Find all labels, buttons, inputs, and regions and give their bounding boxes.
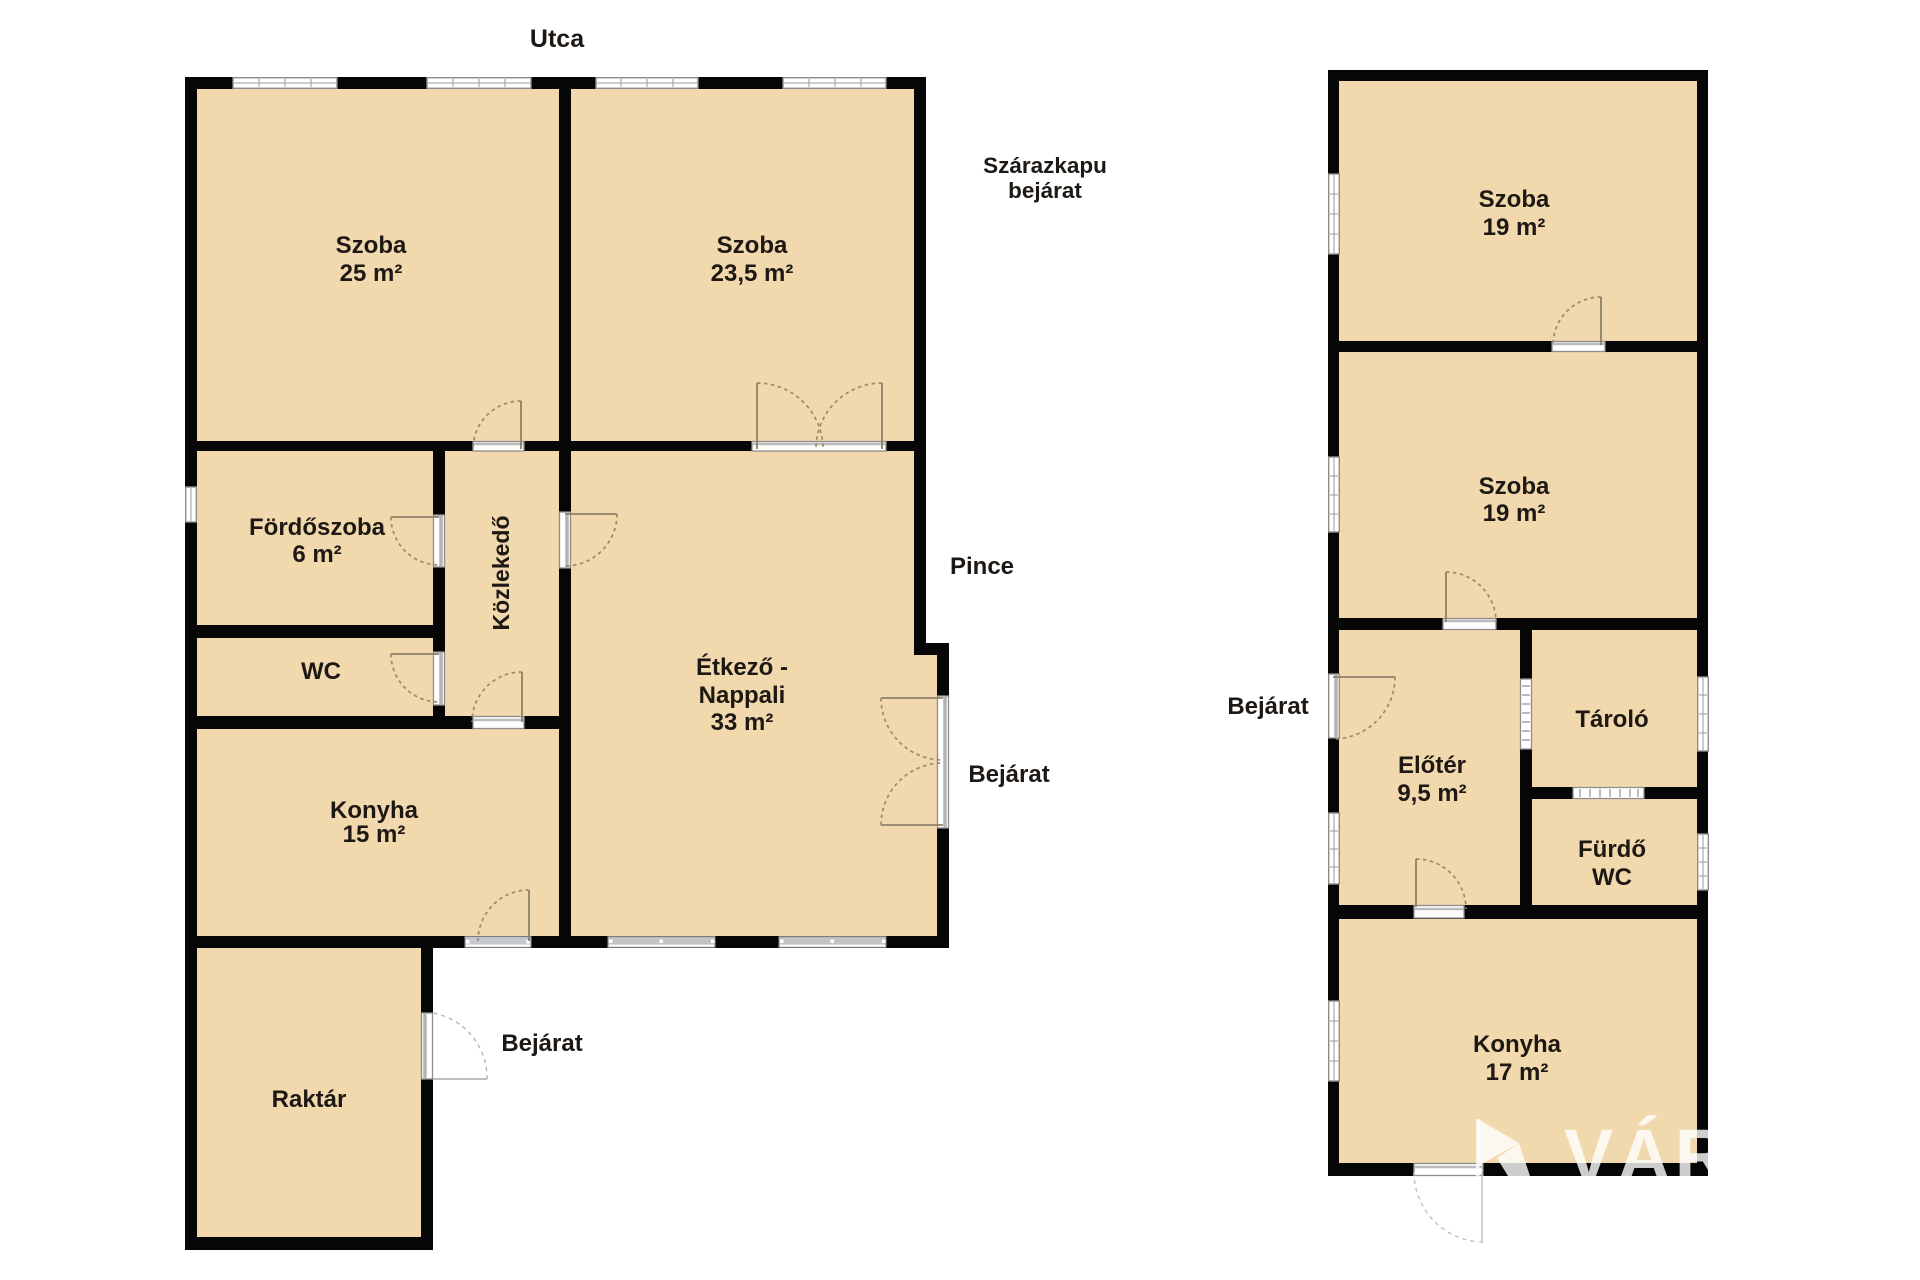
svg-text:Nappali: Nappali — [699, 682, 786, 709]
svg-text:Fördőszoba: Fördőszoba — [249, 514, 386, 541]
svg-text:17 m²: 17 m² — [1486, 1059, 1549, 1086]
svg-text:Szoba: Szoba — [1479, 473, 1550, 500]
svg-text:bejárat: bejárat — [1008, 178, 1082, 203]
svg-text:Raktár: Raktár — [272, 1086, 347, 1113]
svg-text:Konyha: Konyha — [1473, 1031, 1562, 1058]
svg-text:Szoba: Szoba — [717, 232, 788, 259]
svg-text:33 m²: 33 m² — [711, 709, 774, 736]
svg-text:9,5 m²: 9,5 m² — [1397, 780, 1466, 807]
svg-text:Pince: Pince — [950, 553, 1014, 580]
svg-text:Utca: Utca — [530, 25, 585, 53]
svg-text:Közlekedő: Közlekedő — [488, 515, 514, 630]
svg-text:Konyha: Konyha — [330, 797, 419, 824]
svg-text:Bejárat: Bejárat — [501, 1030, 582, 1057]
svg-text:19 m²: 19 m² — [1483, 214, 1546, 241]
svg-text:Szoba: Szoba — [336, 232, 407, 259]
svg-text:Szárazkapu: Szárazkapu — [983, 153, 1107, 178]
svg-text:Tároló: Tároló — [1575, 706, 1648, 733]
svg-text:VÁR: VÁR — [1564, 1114, 1732, 1197]
svg-text:Étkező -: Étkező - — [696, 653, 788, 681]
svg-text:Előtér: Előtér — [1398, 752, 1466, 779]
svg-text:23,5 m²: 23,5 m² — [711, 260, 794, 287]
svg-text:Bejárat: Bejárat — [968, 761, 1049, 788]
svg-text:Bejárat: Bejárat — [1227, 693, 1308, 720]
svg-text:WC: WC — [1592, 864, 1632, 891]
svg-text:25 m²: 25 m² — [340, 260, 403, 287]
svg-text:Fürdő: Fürdő — [1578, 836, 1646, 863]
svg-text:6 m²: 6 m² — [292, 541, 341, 568]
svg-text:19 m²: 19 m² — [1483, 500, 1546, 527]
svg-text:WC: WC — [301, 658, 341, 685]
svg-text:Szoba: Szoba — [1479, 186, 1550, 213]
svg-text:15 m²: 15 m² — [343, 821, 406, 848]
